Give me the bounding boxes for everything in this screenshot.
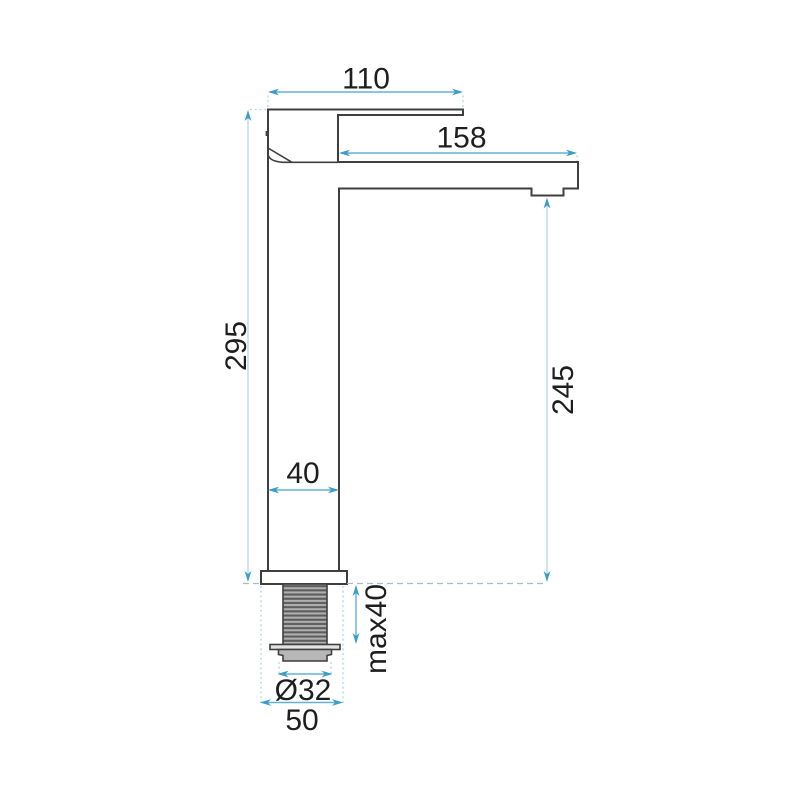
faucet-body: [243, 110, 578, 662]
dimension-label: 50: [285, 704, 318, 737]
dimension-label: 110: [342, 63, 390, 96]
extension-line: [268, 96, 463, 111]
dim-max-thickness: max40: [353, 584, 393, 674]
dim-spout-reach: 158: [339, 122, 577, 162]
dimension-label: 158: [436, 122, 486, 155]
dimension-label: 245: [547, 365, 580, 415]
dimension-label: max40: [360, 584, 393, 674]
dim-handle-length: 110: [268, 63, 463, 111]
mounting-nut: [279, 650, 332, 662]
dimension-label: 40: [286, 457, 319, 490]
dim-outlet-height: 245: [544, 198, 580, 583]
dim-total-height: 295: [220, 110, 266, 583]
base-plate: [261, 571, 347, 584]
dimension-label: 295: [220, 321, 253, 371]
drawing-canvas: 110 158 295 245: [0, 0, 800, 800]
threaded-shank: [283, 584, 327, 645]
faucet-technical-drawing: 110 158 295 245: [0, 0, 800, 800]
dim-thread-diameter: Ø32: [275, 662, 333, 707]
faucet-silhouette: [268, 110, 578, 572]
